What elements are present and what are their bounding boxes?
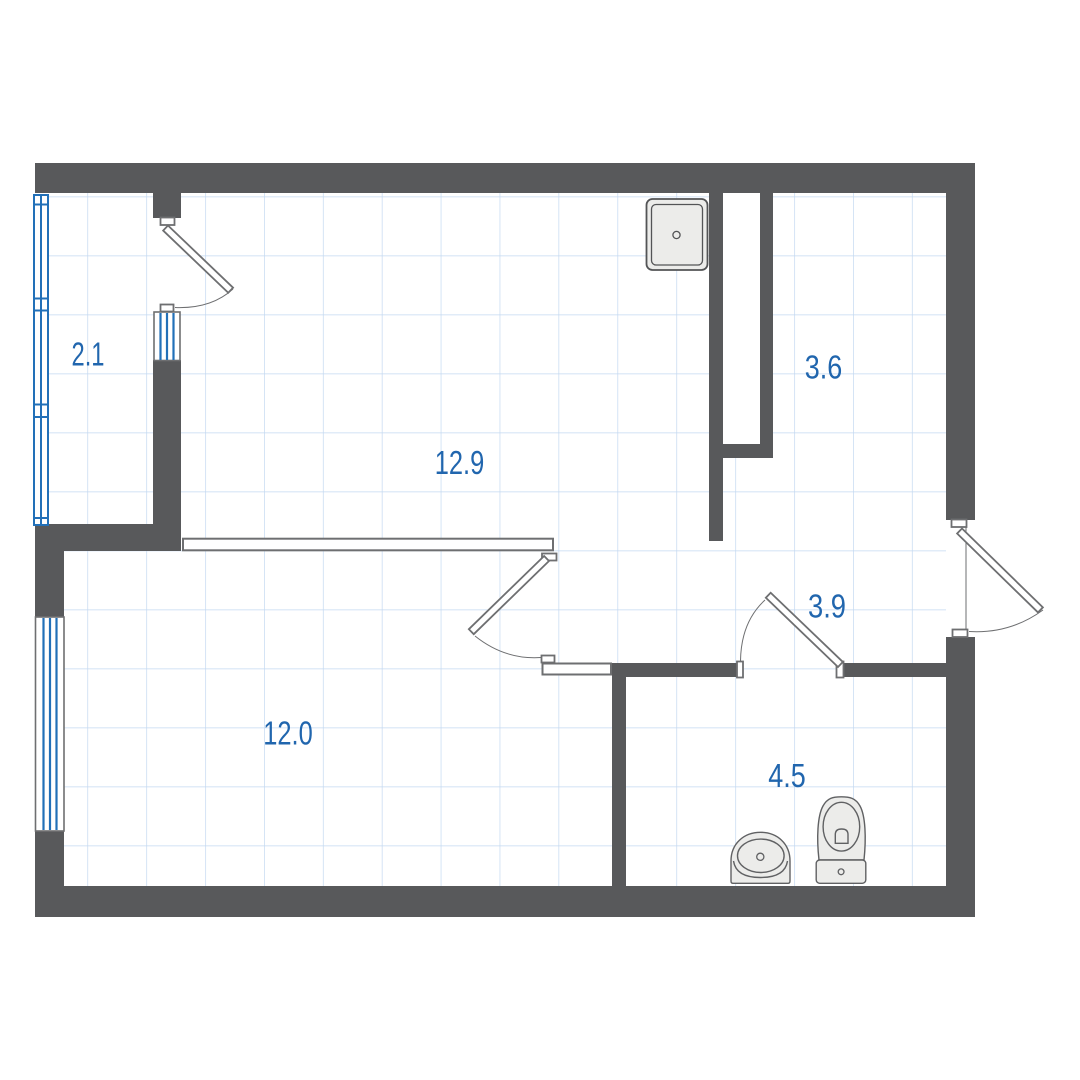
svg-text:12.9: 12.9 bbox=[435, 445, 485, 482]
svg-text:4.5: 4.5 bbox=[768, 758, 806, 795]
svg-text:2.1: 2.1 bbox=[72, 337, 105, 374]
svg-text:12.0: 12.0 bbox=[263, 716, 313, 753]
svg-text:3.9: 3.9 bbox=[808, 589, 846, 626]
svg-text:3.6: 3.6 bbox=[805, 350, 843, 387]
